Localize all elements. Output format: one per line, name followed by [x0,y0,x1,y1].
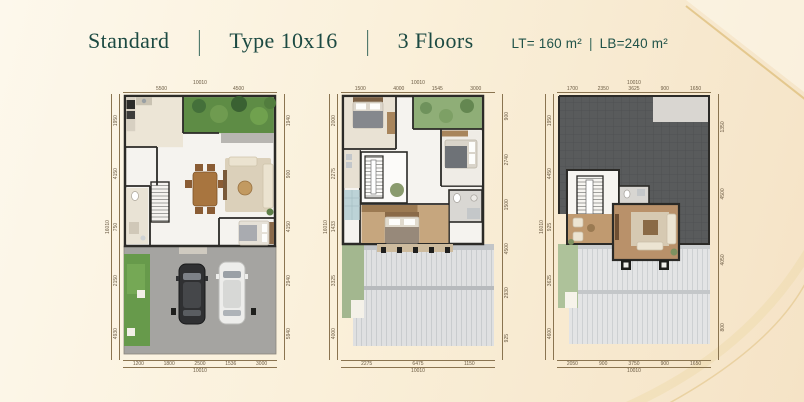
corner-highlight [686,0,804,92]
dimension-label: 3625 [547,254,553,307]
dimension-label: 16010 [105,94,111,360]
dimension-label: 2940 [286,254,292,307]
balcony [377,244,453,253]
dimension-col-left: 20002275143333254000 [330,94,338,360]
dimension-row-bottom-total: 10010 [341,367,495,374]
dimension-label: 4150 [286,200,292,253]
floor-plan-2: 10010 1500400015453000 16010 20002275143… [322,80,514,382]
dimension-label: 900 [504,94,510,138]
dimension-label: 3325 [331,254,337,307]
dimension-label: 750 [113,200,119,253]
dimension-label: 4930 [113,307,119,360]
hallway-laundry [344,150,360,220]
header-separator: | [197,26,201,58]
side-garden [558,244,578,308]
dimension-label: 5500 [123,86,200,92]
dimension-col-left: 1950415075021504930 [112,94,120,360]
dimension-label: 925 [547,200,553,253]
service-bathroom [126,188,148,244]
dimension-label: 1650 [680,86,711,92]
lounge-corner [568,214,618,245]
dimension-label: 10010 [557,368,711,374]
dimension-label: 900 [286,147,292,200]
header-separator: | [366,26,370,58]
car-dark [176,264,208,324]
bedroom-ground [239,221,274,245]
dimension-label: 900 [649,86,680,92]
dimension-col-right: 1940900415029405940 [284,94,292,360]
stairs [151,182,169,222]
dimension-col-left-total: 16010 [538,94,546,360]
dimension-label: 1700 [557,86,588,92]
label-standard: Standard [88,28,169,54]
dimension-label: 4450 [547,147,553,200]
dimension-label: 2350 [588,86,619,92]
lot-area: LT= 160 m² [512,36,582,51]
dimension-label: 800 [720,294,726,361]
dimension-label: 1500 [504,183,510,227]
dimension-label: 4500 [200,86,277,92]
dimension-row-bottom-total: 10010 [557,367,711,374]
dimension-label: 1545 [418,86,457,92]
dimension-label: 10010 [341,368,495,374]
dimension-row-top: 55004500 [123,86,277,93]
dimension-label: 5940 [286,307,292,360]
building-area: LB=240 m² [600,36,668,51]
dimension-label: 4500 [720,161,726,228]
dimension-label: 2150 [113,254,119,307]
roof-garden [413,97,482,129]
floor3-drawing [557,94,711,360]
floor1-drawing [123,94,277,360]
dimension-label: 1940 [286,94,292,147]
dimension-label: 2000 [331,94,337,147]
gate-post-right [251,308,256,315]
family-room [613,204,679,260]
floor-plan-1: 10010 55004500 16010 1950415075021504930… [104,80,296,382]
dimension-label: 3000 [457,86,496,92]
living-room [223,157,274,216]
dimension-col-right: 135045004050800 [718,94,726,360]
dimension-col-left-total: 16010 [104,94,112,360]
dimension-label: 4050 [720,227,726,294]
dimension-row-bottom: 205090037509001650 [557,360,711,367]
dimension-label: 1950 [547,94,553,147]
stairwell-void [361,152,407,203]
dimension-label: 1950 [113,94,119,147]
label-type: Type 10x16 [229,28,337,54]
bedroom-3 [442,131,482,186]
dimension-label: 4000 [380,86,419,92]
dimension-label: 1350 [720,94,726,161]
dimension-row-bottom: 227564751150 [341,360,495,367]
bathroom-3 [619,186,649,204]
dimension-row-top: 1700235036259001650 [557,86,711,93]
dimension-label: 1433 [331,200,337,253]
dimension-label: 10010 [123,368,277,374]
dimension-label: 925 [504,316,510,360]
dimension-row-bottom: 12001800250015363000 [123,360,277,367]
master-bedroom [362,205,449,243]
dimension-label: 4600 [547,307,553,360]
header: Standard | Type 10x16 | 3 Floors LT= 160… [88,28,668,54]
dimension-label: 2275 [331,147,337,200]
dimension-label: 4150 [113,147,119,200]
dimension-label: 2740 [504,138,510,182]
carport-roof [353,244,494,346]
floor2-drawing [341,94,495,360]
dimension-label: 1500 [341,86,380,92]
car-white [216,262,248,324]
area-info: LT= 160 m²|LB=240 m² [512,36,668,51]
dimension-col-left-total: 16010 [322,94,330,360]
dimension-col-right: 9002740150045002930925 [502,94,510,360]
dimension-label: 2930 [504,271,510,315]
front-garden [124,254,150,346]
dimension-row-top: 1500400015453000 [341,86,495,93]
bathroom-2 [449,190,482,222]
dimension-label: 16010 [539,94,545,360]
side-garden [342,244,364,318]
dimension-label: 4000 [331,307,337,360]
dimension-label: 3625 [619,86,650,92]
kitchen [126,97,183,147]
bedroom-2 [344,97,396,149]
area-separator: | [589,36,593,51]
floor-plan-3: 10010 1700235036259001650 16010 19504450… [538,80,730,382]
label-floors: 3 Floors [398,28,474,54]
dimension-label: 4500 [504,227,510,271]
gate-post-left [171,308,176,315]
dimension-row-bottom-total: 10010 [123,367,277,374]
dimension-col-left: 1950445092536254600 [546,94,554,360]
dimension-label: 16010 [323,94,329,360]
